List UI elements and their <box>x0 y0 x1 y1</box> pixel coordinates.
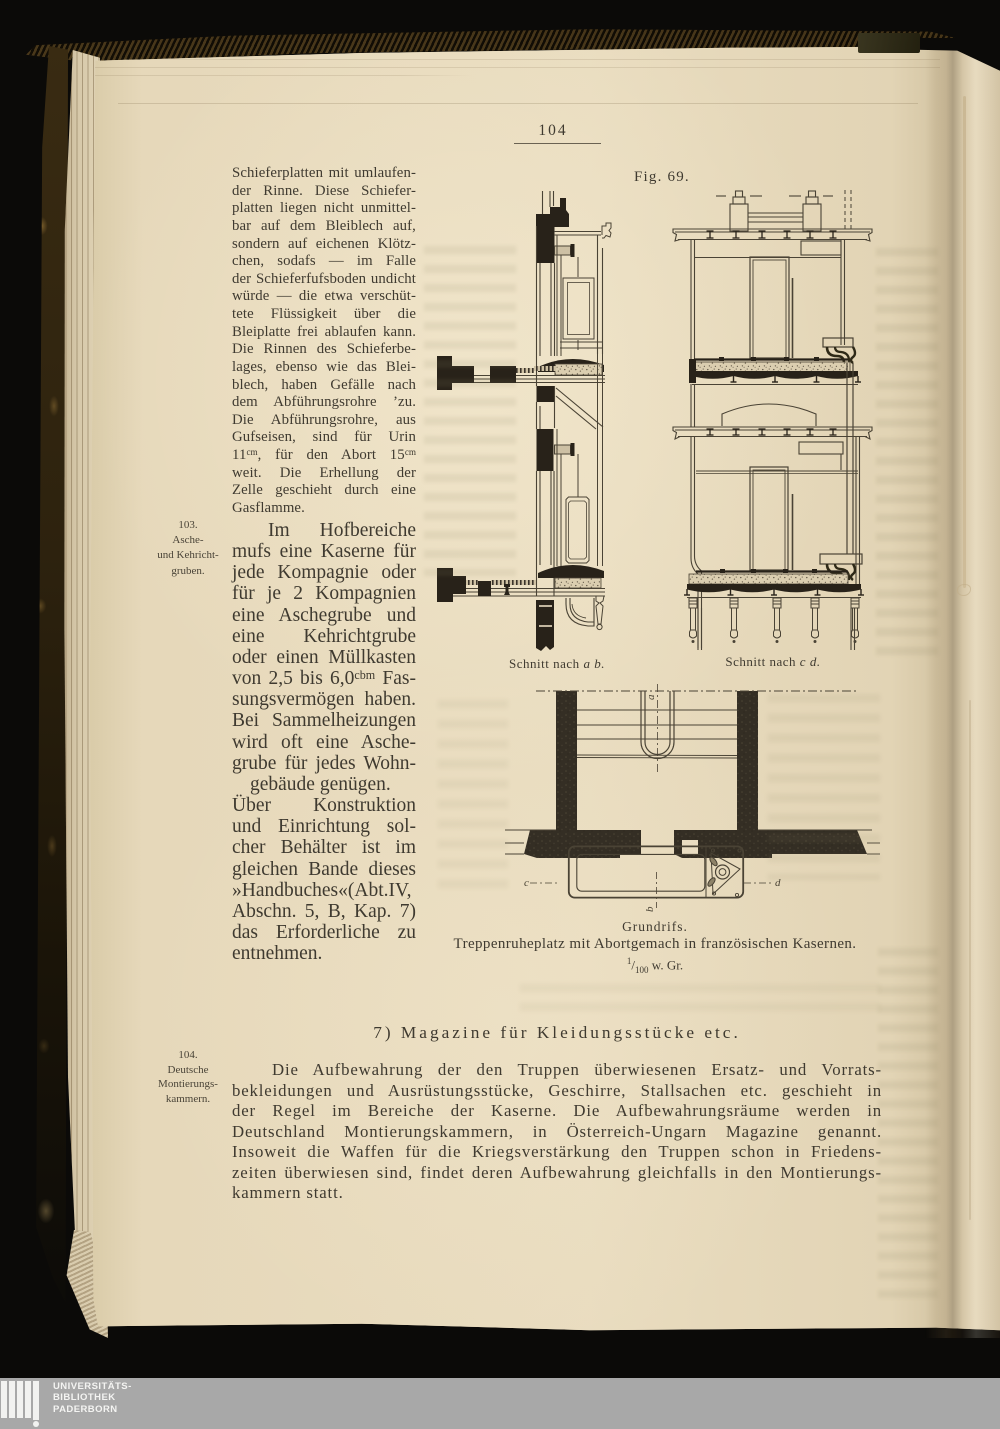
svg-text:a: a <box>645 694 657 700</box>
svg-text:c: c <box>524 877 529 889</box>
svg-text:b: b <box>644 906 656 912</box>
